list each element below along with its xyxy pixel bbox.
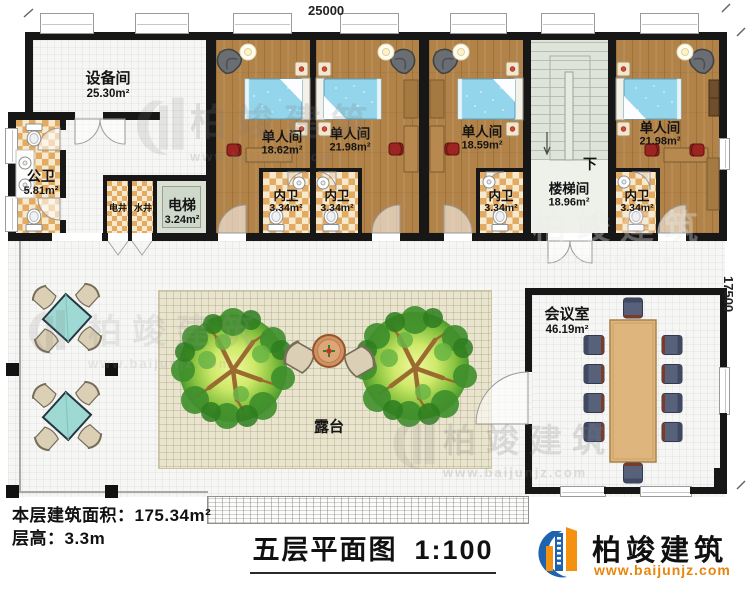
terrace-table-set	[9, 260, 125, 376]
room-label-bedroom2: 单人间 21.98m²	[330, 126, 371, 153]
room-label-terrace: 露台	[314, 420, 344, 437]
room-label-bedroom3: 单人间 18.59m²	[462, 124, 503, 151]
floor-area-note: 本层建筑面积：175.34m²	[12, 501, 211, 526]
room-label-public-wc: 公卫 5.81m²	[24, 169, 59, 197]
plan-title: 五层平面图 1:100	[250, 528, 496, 574]
room-label-water-shaft: 水井	[134, 203, 152, 213]
room-area: 18.59m²	[462, 139, 503, 151]
room-area: 3.34m²	[620, 203, 653, 215]
room-label-ensuite4: 内卫 3.34m²	[620, 189, 653, 215]
room-name: 内卫	[484, 189, 517, 203]
room-label-stairwell: 楼梯间 18.96m²	[549, 181, 590, 208]
room-label-bedroom1: 单人间 18.62m²	[262, 129, 303, 156]
room-label-bedroom4: 单人间 21.98m²	[640, 120, 681, 147]
brand-url: www.baijunjz.com	[594, 562, 731, 578]
room-area: 3.24m²	[165, 214, 200, 226]
floor-plan-canvas: 25000 17500	[0, 0, 750, 595]
room-name: 单人间	[462, 124, 503, 139]
floor-height-note: 层高：3.3m	[12, 524, 105, 549]
room-area: 46.19m²	[544, 324, 589, 337]
plan-scale: 1:100	[414, 535, 493, 565]
room-name: 电梯	[165, 198, 200, 214]
room-area: 21.98m²	[640, 135, 681, 147]
room-area: 3.34m²	[484, 203, 517, 215]
room-label-elevator: 电梯 3.24m²	[165, 198, 200, 226]
bed	[245, 62, 310, 136]
room-label-electrical-shaft: 电井	[109, 203, 127, 213]
plan-title-text: 五层平面图	[252, 535, 397, 565]
dimension-right: 17500	[721, 276, 736, 312]
room-name: 电井	[109, 203, 127, 213]
room-label-equipment: 设备间 25.30m²	[85, 71, 130, 101]
room-name: 单人间	[640, 120, 681, 135]
room-name: 单人间	[262, 129, 303, 144]
ceiling-light-icon	[677, 44, 693, 60]
room-name: 设备间	[85, 71, 130, 88]
room-label-ensuite2: 内卫 3.34m²	[320, 189, 353, 215]
room-label-ensuite1: 内卫 3.34m²	[269, 189, 302, 215]
down-text: 下	[583, 157, 597, 173]
room-area: 3.34m²	[320, 203, 353, 215]
floor-area-label: 本层建筑面积：	[12, 506, 135, 525]
room-label-ensuite3: 内卫 3.34m²	[484, 189, 517, 215]
ceiling-light-icon	[453, 44, 469, 60]
brand-logo-icon	[534, 524, 590, 580]
wardrobe	[709, 80, 719, 116]
room-label-meeting: 会议室 46.19m²	[544, 307, 589, 337]
room-name: 露台	[314, 420, 344, 437]
room-area: 25.30m²	[85, 88, 130, 101]
room-name: 会议室	[544, 307, 589, 324]
floor-height-label: 层高：	[12, 529, 65, 548]
room-area: 5.81m²	[24, 185, 59, 197]
tree	[171, 308, 295, 429]
conference-table	[610, 320, 656, 462]
bed	[316, 62, 381, 136]
room-name: 楼梯间	[549, 181, 590, 196]
room-area: 18.62m²	[262, 144, 303, 156]
room-name: 水井	[134, 203, 152, 213]
floor-height-value: 3.3m	[65, 529, 106, 548]
room-name: 单人间	[330, 126, 371, 141]
ceiling-light-icon	[378, 44, 394, 60]
room-name: 内卫	[320, 189, 353, 203]
sink	[19, 157, 630, 191]
room-area: 18.96m²	[549, 196, 590, 208]
room-name: 内卫	[269, 189, 302, 203]
terrace-table-set	[9, 358, 125, 474]
room-name: 内卫	[620, 189, 653, 203]
dimension-top: 25000	[308, 3, 344, 18]
floor-area-value: 175.34m²	[135, 506, 212, 525]
room-area: 21.98m²	[330, 141, 371, 153]
room-name: 公卫	[24, 169, 59, 185]
room-area: 3.34m²	[269, 203, 302, 215]
stairs-down-label: 下	[583, 157, 597, 173]
stairs-detail	[544, 56, 590, 160]
ceiling-light-icon	[240, 44, 256, 60]
armchair	[212, 44, 245, 77]
